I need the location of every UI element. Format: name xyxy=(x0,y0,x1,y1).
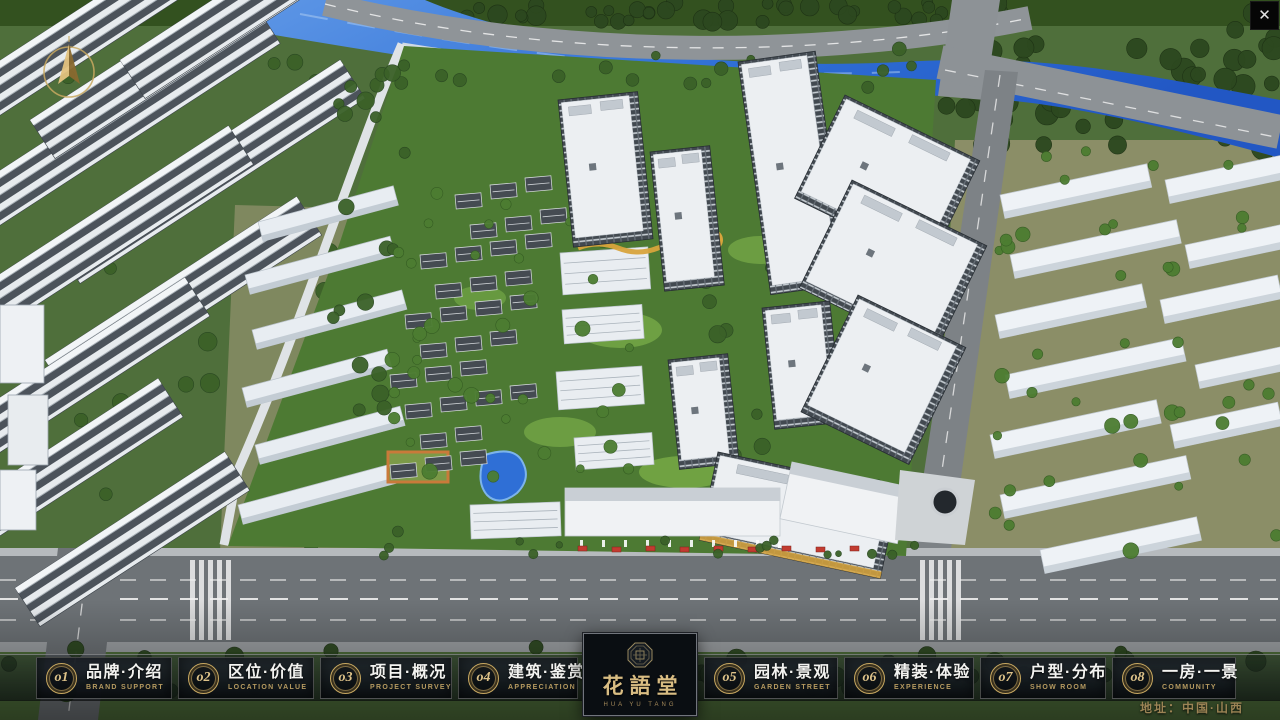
nav-title: 建筑·鉴赏 xyxy=(508,665,585,682)
nav-number-badge: o1 xyxy=(46,663,77,694)
project-name: 花語堂 xyxy=(597,670,684,700)
nav-subtitle: GARDEN STREET xyxy=(754,684,831,691)
nav-title: 精装·体验 xyxy=(894,665,971,682)
nav-item-garden[interactable]: o5 园林·景观 GARDEN STREET xyxy=(704,657,838,699)
nav-subtitle: SHOW ROOM xyxy=(1030,684,1107,691)
presentation-stage: ✕ o1 品牌·介绍 BRAND SUPPORT o2 区位·价值 LOCATI… xyxy=(0,0,1280,720)
nav-subtitle: APPRECIATION xyxy=(508,684,585,691)
nav-number-badge: o3 xyxy=(330,663,361,694)
project-logo[interactable]: 花語堂 HUA YU TANG xyxy=(583,633,697,716)
nav-title: 品牌·介绍 xyxy=(86,665,164,682)
nav-number-badge: o2 xyxy=(188,663,219,694)
nav-subtitle: LOCATION VALUE xyxy=(228,684,307,691)
address-label: 地址：中国·山西 xyxy=(1140,699,1244,716)
nav-title: 户型·分布 xyxy=(1030,665,1107,682)
nav-item-brand[interactable]: o1 品牌·介绍 BRAND SUPPORT xyxy=(36,657,172,699)
nav-number-badge: o4 xyxy=(468,663,499,694)
nav-number-badge: o5 xyxy=(714,663,745,694)
nav-item-project[interactable]: o3 项目·概况 PROJECT SURVEY xyxy=(320,657,452,699)
masterplan-render xyxy=(0,0,1280,720)
nav-number-badge: o8 xyxy=(1122,663,1153,694)
nav-item-interior[interactable]: o6 精装·体验 EXPERIENCE xyxy=(844,657,974,699)
nav-title: 区位·价值 xyxy=(228,665,307,682)
nav-item-views[interactable]: o8 一房·一景 COMMUNITY xyxy=(1112,657,1236,699)
nav-number-badge: o7 xyxy=(990,663,1021,694)
seal-emblem-icon xyxy=(627,642,653,668)
nav-subtitle: BRAND SUPPORT xyxy=(86,684,164,691)
nav-item-location[interactable]: o2 区位·价值 LOCATION VALUE xyxy=(178,657,314,699)
nav-title: 项目·概况 xyxy=(370,665,452,682)
nav-item-floorplan[interactable]: o7 户型·分布 SHOW ROOM xyxy=(980,657,1106,699)
nav-number-badge: o6 xyxy=(854,663,885,694)
project-name-caption: HUA YU TANG xyxy=(603,702,676,708)
nav-item-architecture[interactable]: o4 建筑·鉴赏 APPRECIATION xyxy=(458,657,578,699)
nav-subtitle: EXPERIENCE xyxy=(894,684,971,691)
nav-subtitle: PROJECT SURVEY xyxy=(370,684,452,691)
close-button[interactable]: ✕ xyxy=(1251,2,1278,29)
nav-title: 一房·一景 xyxy=(1162,665,1239,682)
nav-subtitle: COMMUNITY xyxy=(1162,684,1239,691)
nav-title: 园林·景观 xyxy=(754,665,831,682)
